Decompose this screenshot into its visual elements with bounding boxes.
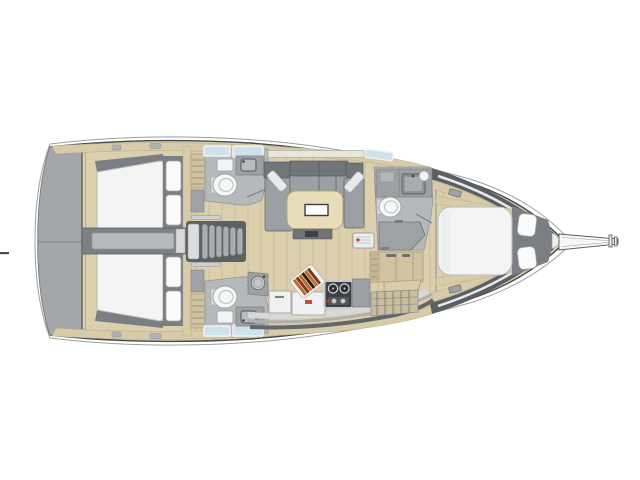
- cabinet-handle: [402, 254, 410, 257]
- starboard-locker: [191, 270, 204, 292]
- locker-red-label: [305, 300, 312, 304]
- faucet: [263, 275, 266, 278]
- deck-fitting: [150, 144, 161, 149]
- pillow: [166, 195, 181, 225]
- mirror-cabinet: [217, 311, 233, 323]
- galley-locker: [269, 291, 291, 313]
- mirror-cabinet: [217, 159, 233, 171]
- bench-hinge: [395, 220, 403, 223]
- stair-landing: [188, 224, 199, 259]
- settee-backrests: [264, 161, 363, 178]
- deck-fitting: [112, 332, 121, 337]
- corridor-end-panel: [176, 229, 185, 253]
- starboard-bulkhead: [183, 252, 191, 336]
- stove: [325, 281, 353, 308]
- deck-skylight: [204, 326, 230, 336]
- deck-fitting: [150, 334, 161, 339]
- port-louvered-locker: [191, 154, 205, 188]
- locker-handle: [275, 296, 284, 298]
- anchor-roller: [615, 237, 618, 246]
- pillow: [166, 161, 181, 191]
- port-locker: [191, 190, 204, 212]
- deck-skylight: [233, 146, 263, 157]
- galley-cabinet-run: [370, 252, 423, 282]
- stove-red-mark: [327, 300, 330, 303]
- deck-skylight: [204, 146, 230, 156]
- pillow: [517, 246, 538, 270]
- bench-hinge: [381, 247, 389, 250]
- counter-tray: [380, 172, 394, 182]
- louver-panel: [370, 254, 379, 280]
- centerline-tick-mark: [0, 252, 9, 254]
- berth-foot-shading: [441, 211, 450, 271]
- faucet: [412, 175, 415, 178]
- stair-handrail-port: [191, 216, 221, 220]
- pump-indicator: [356, 238, 359, 241]
- faucet: [242, 319, 245, 322]
- stove-control-panel: [328, 297, 349, 305]
- starboard-louvered-locker: [191, 294, 205, 328]
- stove-dial: [341, 299, 346, 304]
- burner-center: [344, 288, 346, 290]
- boat-layout-plan: [0, 0, 640, 480]
- water-heater-cylinder: [419, 171, 429, 181]
- port-aft-berth: [97, 161, 163, 230]
- burner-center: [332, 288, 334, 290]
- pump-unit: [353, 233, 374, 248]
- cabinet-handle: [386, 254, 396, 257]
- pump-box: [353, 233, 374, 248]
- head-aft-port: [204, 146, 268, 205]
- pillow: [166, 257, 181, 287]
- table-inset: [305, 205, 328, 216]
- worktop: [353, 279, 371, 307]
- bowsprit: [559, 234, 618, 250]
- saloon: [264, 151, 365, 240]
- faucet: [242, 160, 245, 163]
- pillow: [517, 213, 538, 237]
- starboard-aft-berth: [97, 252, 163, 321]
- table-base-vent: [305, 231, 318, 237]
- round-sink: [251, 276, 265, 290]
- anchor-roller: [609, 235, 612, 247]
- sink-basin-inner: [405, 177, 422, 191]
- port-bulkhead: [183, 146, 191, 230]
- stair-handrail-starboard: [191, 263, 221, 267]
- slatted-rack: [371, 290, 418, 316]
- engine-hatch-lid: [92, 233, 174, 249]
- deck-fitting: [112, 145, 121, 150]
- swim-platform-deck: [38, 147, 82, 335]
- yacht-floorplan-svg: [0, 0, 640, 480]
- stove-dial: [332, 299, 337, 304]
- pillow: [166, 291, 181, 321]
- saloon-hull-window: [268, 151, 364, 158]
